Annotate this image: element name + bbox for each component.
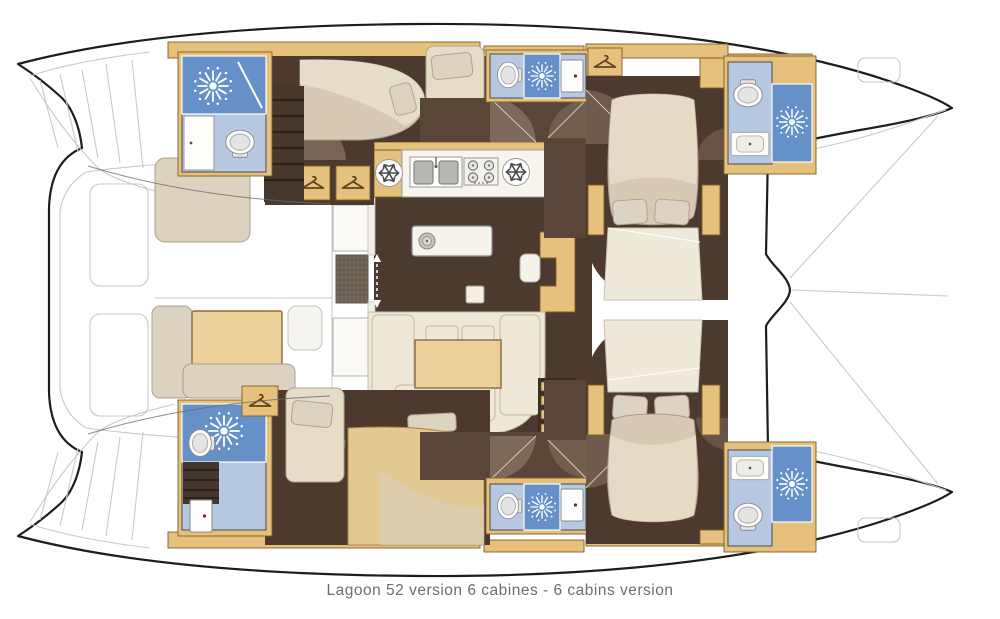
vanity-sink-icon xyxy=(731,456,769,479)
port-forward-cabin xyxy=(586,58,728,300)
catamaran-floorplan xyxy=(0,0,1000,619)
shower-rose-icon xyxy=(528,493,556,521)
wardrobe xyxy=(588,48,622,76)
pillow xyxy=(654,199,690,225)
stairs xyxy=(183,462,219,504)
mattress xyxy=(604,320,702,392)
starboard-forward-bathroom xyxy=(724,442,816,552)
bedside-unit xyxy=(588,385,604,435)
cockpit-module xyxy=(333,318,371,376)
door-panel-icon xyxy=(561,60,583,92)
bedside-unit xyxy=(588,185,604,235)
sofa-stool xyxy=(462,326,494,341)
wardrobe xyxy=(336,166,370,200)
pillow xyxy=(431,52,473,80)
port-aft-bathroom xyxy=(178,52,272,176)
bedside-unit xyxy=(702,185,720,235)
vanity-cabinet xyxy=(184,116,214,170)
shower-rose-icon xyxy=(776,468,807,499)
stove-burners-icon xyxy=(464,158,498,185)
cockpit-table xyxy=(192,311,282,367)
snowflake-icon xyxy=(376,160,403,187)
salon-pouf xyxy=(466,286,484,303)
cockpit-seat-small xyxy=(288,306,322,350)
shower-rose-icon xyxy=(528,62,556,90)
pillow xyxy=(291,400,333,428)
starboard-mid-bathroom xyxy=(486,478,590,534)
port-mid-bathroom xyxy=(486,50,590,102)
shower-stall xyxy=(182,56,266,114)
galley-island xyxy=(412,226,492,256)
shower-rose-icon xyxy=(776,106,807,137)
floorplan-page: Lagoon 52 version 6 cabines - 6 cabins v… xyxy=(0,0,1000,619)
nav-seat xyxy=(520,254,540,282)
starboard-forward-cabin xyxy=(586,320,728,544)
cockpit-module xyxy=(333,205,371,251)
caption: Lagoon 52 version 6 cabines - 6 cabins v… xyxy=(0,582,1000,600)
cabin-cabinet xyxy=(700,58,726,88)
port-forward-bathroom xyxy=(724,56,816,174)
pillow xyxy=(612,199,648,225)
door-panel-icon xyxy=(190,500,212,532)
hull-cabinetry xyxy=(484,540,584,552)
mattress xyxy=(604,228,702,300)
dining-table xyxy=(415,340,501,388)
sofa-cushion xyxy=(500,315,540,415)
round-sink-icon xyxy=(419,233,435,249)
sofa-stool xyxy=(426,326,458,341)
door-panel-icon xyxy=(561,489,583,521)
shower-rose-icon xyxy=(194,67,232,105)
vanity-sink-icon xyxy=(731,132,769,155)
bedside-unit xyxy=(702,385,720,435)
snowflake-icon xyxy=(503,159,530,186)
galley xyxy=(374,150,548,197)
cabin-cabinet xyxy=(700,530,726,544)
door-mat xyxy=(336,255,368,303)
starboard-aft-bathroom xyxy=(178,400,272,536)
double-sink-icon xyxy=(410,157,462,187)
